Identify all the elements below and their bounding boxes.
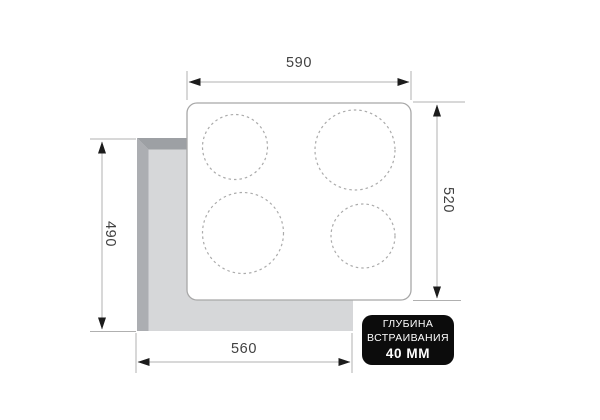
dimension-label-right-height: 520 bbox=[440, 187, 456, 213]
dimension-label-bottom-width: 560 bbox=[231, 341, 257, 357]
cooktop-panel bbox=[187, 103, 411, 300]
depth-badge-line1: ГЛУБИНА bbox=[383, 318, 433, 330]
installation-diagram: 590 520 490 560 ГЛУБИНА ВСТРАИВАНИЯ 40 М… bbox=[0, 0, 600, 420]
dimension-top-width bbox=[187, 71, 411, 100]
dimension-label-left-height: 490 bbox=[102, 221, 118, 247]
dimension-right-height bbox=[413, 102, 465, 301]
cutout-rim-left bbox=[137, 138, 149, 331]
depth-badge-value: 40 ММ bbox=[386, 346, 430, 362]
depth-badge: ГЛУБИНА ВСТРАИВАНИЯ 40 ММ bbox=[362, 315, 454, 365]
dimension-label-top-width: 590 bbox=[286, 55, 312, 71]
depth-badge-line2: ВСТРАИВАНИЯ bbox=[367, 332, 449, 344]
